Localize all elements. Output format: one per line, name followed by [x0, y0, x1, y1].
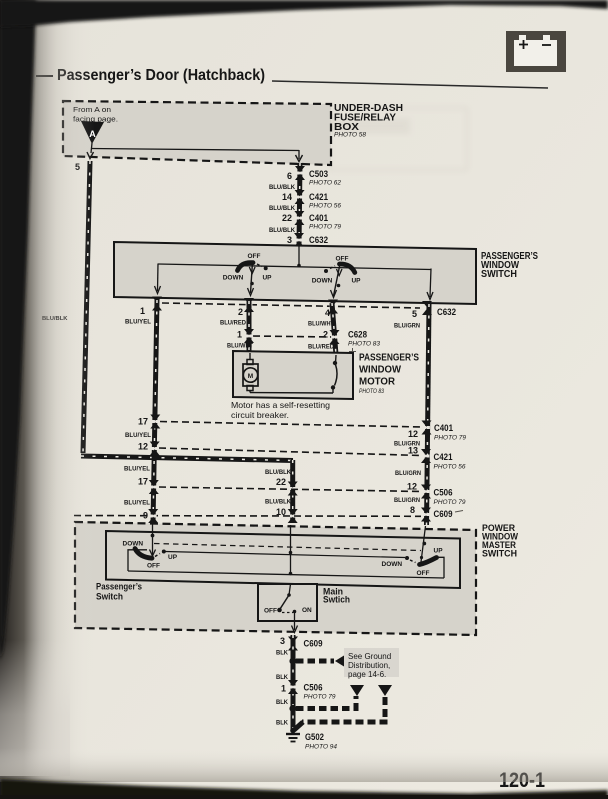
- svg-text:UP: UP: [434, 548, 444, 555]
- svg-text:PASSENGER’S: PASSENGER’S: [359, 353, 419, 364]
- svg-text:Swtich: Swtich: [323, 595, 350, 606]
- svg-text:5: 5: [412, 309, 417, 319]
- svg-text:BLU/YEL: BLU/YEL: [125, 319, 151, 326]
- svg-text:PHOTO 79: PHOTO 79: [309, 224, 341, 231]
- svg-text:22: 22: [276, 477, 286, 487]
- svg-text:C609: C609: [304, 639, 323, 650]
- svg-text:BLU/WHT: BLU/WHT: [227, 343, 253, 350]
- svg-text:UP: UP: [168, 554, 178, 561]
- svg-text:OFF: OFF: [248, 253, 261, 260]
- svg-text:Distribution,: Distribution,: [348, 661, 390, 670]
- svg-text:BLK: BLK: [276, 699, 288, 706]
- svg-text:PHOTO 58: PHOTO 58: [334, 132, 366, 139]
- svg-text:WINDOW: WINDOW: [359, 365, 402, 376]
- svg-text:17: 17: [138, 477, 148, 487]
- svg-text:SWITCH: SWITCH: [482, 549, 517, 560]
- svg-text:BLU/WHT: BLU/WHT: [308, 321, 334, 328]
- svg-text:BLU/YEL: BLU/YEL: [124, 466, 150, 473]
- svg-text:BLU/RED: BLU/RED: [308, 344, 334, 351]
- svg-text:12: 12: [138, 442, 148, 452]
- svg-text:6: 6: [287, 171, 292, 181]
- svg-text:BLU/YEL: BLU/YEL: [124, 500, 150, 507]
- svg-text:4: 4: [325, 308, 330, 318]
- svg-text:Switch: Switch: [96, 592, 123, 603]
- svg-text:2: 2: [238, 307, 243, 317]
- svg-text:12: 12: [407, 482, 417, 492]
- svg-text:OFF: OFF: [336, 256, 349, 263]
- svg-text:PHOTO 79: PHOTO 79: [434, 499, 466, 506]
- svg-text:BLU/RED: BLU/RED: [220, 320, 246, 327]
- svg-text:BLK: BLK: [276, 674, 288, 681]
- svg-text:BLK: BLK: [276, 650, 288, 657]
- svg-text:C632: C632: [309, 235, 328, 246]
- svg-text:DOWN: DOWN: [382, 561, 403, 568]
- svg-text:2: 2: [323, 330, 328, 340]
- svg-text:PHOTO 56: PHOTO 56: [309, 203, 341, 210]
- svg-text:page 14-6.: page 14-6.: [348, 670, 386, 679]
- svg-text:G502: G502: [305, 732, 324, 743]
- svg-text:C506: C506: [304, 683, 323, 694]
- svg-text:MOTOR: MOTOR: [359, 377, 396, 388]
- svg-text:UP: UP: [262, 275, 272, 282]
- svg-text:circuit breaker.: circuit breaker.: [231, 410, 289, 420]
- svg-text:C401: C401: [309, 213, 329, 224]
- svg-text:17: 17: [138, 417, 148, 427]
- svg-text:PHOTO 83: PHOTO 83: [359, 388, 384, 395]
- svg-text:PHOTO 56: PHOTO 56: [434, 464, 466, 471]
- svg-text:BLU/BLK: BLU/BLK: [269, 184, 295, 191]
- svg-text:BLU/BLK: BLU/BLK: [265, 499, 291, 506]
- svg-text:PHOTO 79: PHOTO 79: [304, 694, 336, 701]
- svg-text:SWITCH: SWITCH: [481, 269, 517, 280]
- svg-text:Motor has a self-resetting: Motor has a self-resetting: [231, 400, 330, 410]
- svg-text:3: 3: [287, 235, 292, 245]
- svg-text:UP: UP: [351, 278, 361, 285]
- svg-text:14: 14: [282, 192, 292, 202]
- svg-text:1: 1: [237, 330, 242, 340]
- svg-text:3: 3: [280, 636, 285, 646]
- svg-text:OFF: OFF: [264, 608, 277, 615]
- svg-text:See Ground: See Ground: [348, 652, 391, 661]
- svg-text:C506: C506: [434, 488, 453, 499]
- svg-text:BLK: BLK: [276, 720, 288, 727]
- svg-text:ON: ON: [302, 607, 312, 614]
- svg-text:C628: C628: [348, 330, 367, 341]
- svg-text:12: 12: [408, 429, 418, 439]
- svg-text:PHOTO 62: PHOTO 62: [309, 180, 341, 187]
- svg-text:PHOTO 83: PHOTO 83: [348, 341, 380, 348]
- svg-text:C421: C421: [309, 192, 329, 203]
- svg-text:BLU/BLK: BLU/BLK: [269, 227, 295, 234]
- svg-text:DOWN: DOWN: [312, 278, 333, 285]
- svg-text:8: 8: [410, 505, 415, 515]
- svg-text:1: 1: [281, 684, 286, 694]
- svg-text:C401: C401: [434, 423, 454, 434]
- svg-text:9: 9: [143, 511, 148, 521]
- svg-text:OFF: OFF: [417, 570, 430, 577]
- svg-text:BLU/BLK: BLU/BLK: [269, 205, 295, 212]
- svg-text:C609: C609: [434, 509, 453, 520]
- svg-text:C503: C503: [309, 169, 328, 180]
- svg-text:C421: C421: [434, 452, 454, 463]
- svg-text:PHOTO 79: PHOTO 79: [434, 435, 466, 442]
- svg-text:BLU/YEL: BLU/YEL: [125, 432, 151, 439]
- svg-text:BLU/GRN: BLU/GRN: [394, 497, 420, 504]
- svg-text:BLU/GRN: BLU/GRN: [394, 323, 420, 330]
- svg-text:DOWN: DOWN: [223, 275, 244, 282]
- svg-text:DOWN: DOWN: [123, 541, 144, 548]
- svg-text:M: M: [248, 373, 253, 380]
- svg-text:1: 1: [140, 306, 145, 316]
- svg-text:OFF: OFF: [147, 563, 160, 570]
- svg-text:BLU/GRN: BLU/GRN: [395, 470, 421, 477]
- svg-text:22: 22: [282, 213, 292, 223]
- svg-text:C632: C632: [437, 307, 456, 318]
- svg-text:BLU/BLK: BLU/BLK: [265, 469, 291, 476]
- svg-text:13: 13: [408, 446, 418, 456]
